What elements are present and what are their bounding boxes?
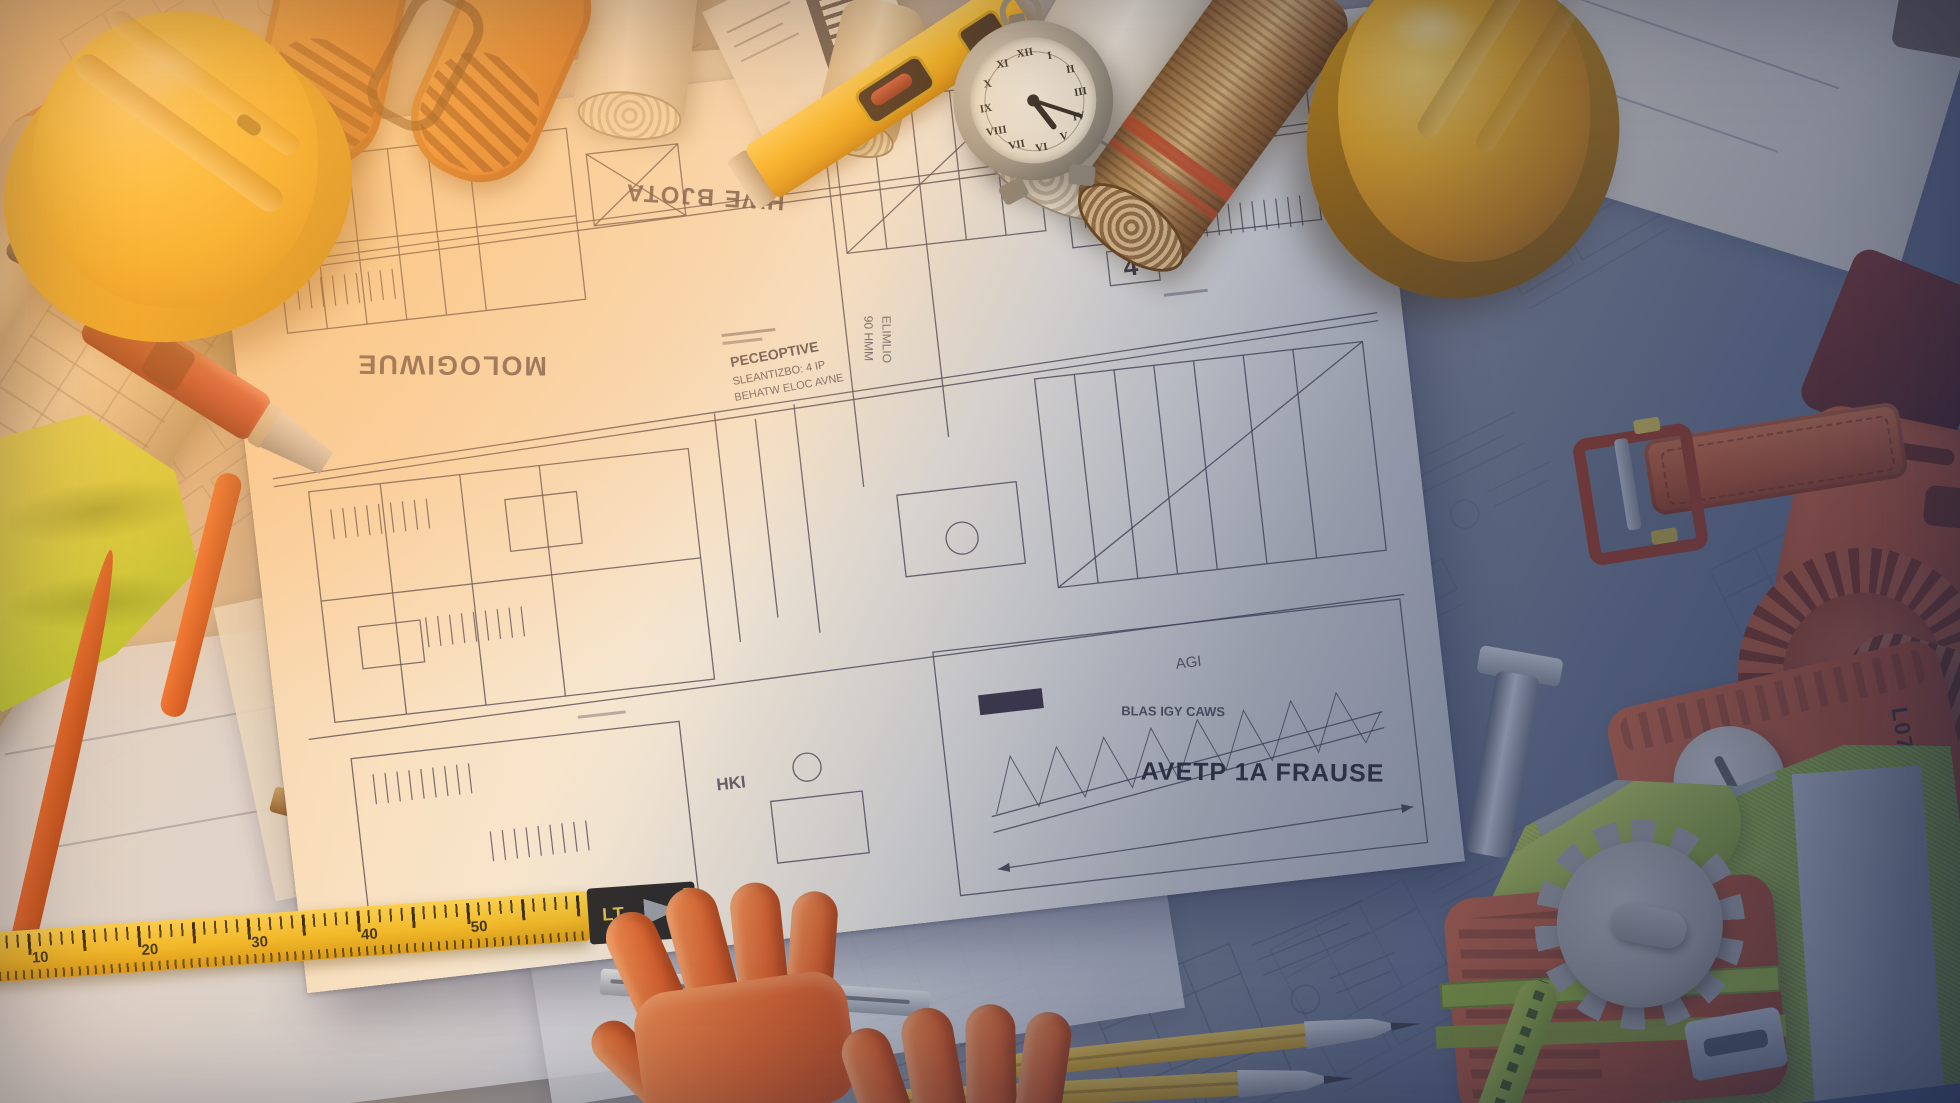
glove-finger [965,1004,1017,1103]
buckle-frame [1571,422,1710,567]
watch-foot [998,176,1030,206]
ruler-number: 30 [251,933,269,951]
vest-fold-shadow [0,467,202,554]
pocket-watch: XII I II III IV V VI VII VIII IX X XI [936,3,1138,229]
pencil-metal-tip [1237,1065,1334,1098]
watch-numeral: V [1053,129,1075,144]
pencil-lead [1390,1017,1421,1033]
hard-hat-highlight [1386,0,1476,56]
sketch-line [727,1,791,33]
ruler-number: 50 [470,918,488,936]
ruler-number: 10 [31,949,49,967]
construction-desk-scene: MOLOGIWUE HWE BJOTA PECEOPTIVE SLEANTIZB… [0,0,1960,1103]
bp-side-note-2: ELIMLIO [879,316,893,363]
glove-finger [1013,1009,1075,1103]
clip-slot [1703,1029,1769,1058]
pencil-metal-tip [1304,1011,1402,1049]
glove-finger [897,1004,971,1103]
ruler-number: 20 [141,941,159,959]
bp-caption-truss: BLAS IGY CAWS [1121,703,1225,719]
watch-numeral: II [1060,62,1082,77]
watch-numeral: VI [1031,140,1053,155]
watch-numeral: III [1070,84,1092,99]
hard-hat-left [0,0,374,360]
bp-side-note-1: 90 HMM [861,316,875,361]
bp-tag-hki: HKI [715,772,746,794]
sketch-line [741,32,799,62]
watch-foot [1068,164,1096,187]
bp-tag-agi: AGI [1175,653,1203,673]
pencil-lead [1323,1072,1354,1087]
ruler-number: 40 [360,926,378,944]
hard-hat-right [1296,0,1636,340]
bp-stamp: AVETP 1A FRAUSE [1141,757,1385,787]
level-bubble [868,71,915,109]
hard-hat-highlight [112,36,212,100]
bp-flipped-title-2: MOLOGIWUE [356,349,547,381]
